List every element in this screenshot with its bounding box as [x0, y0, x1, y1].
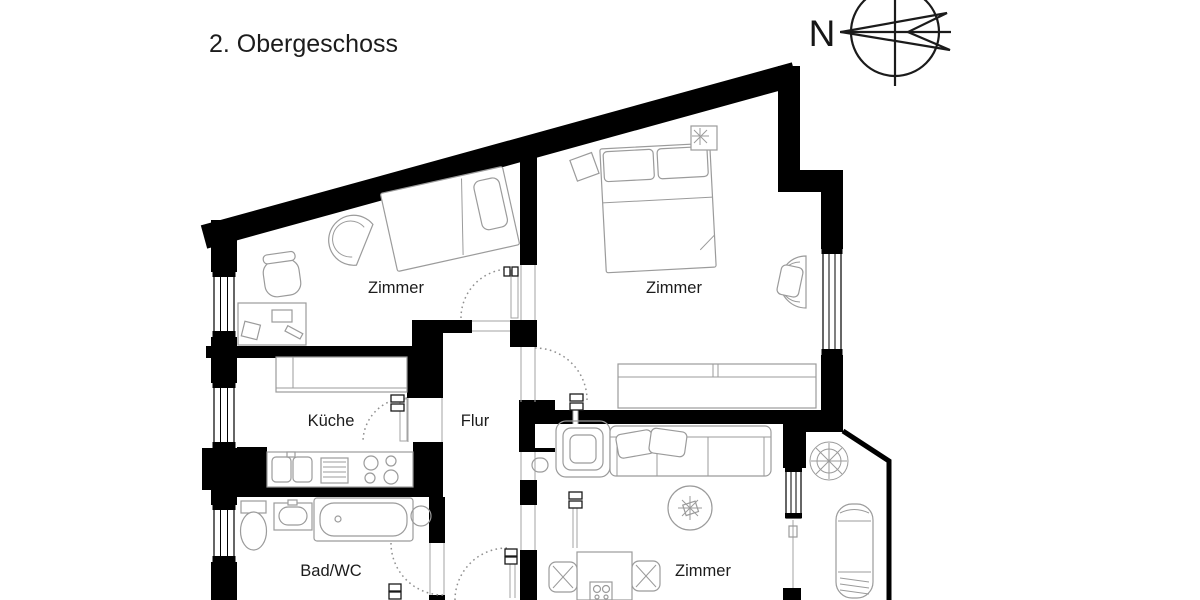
sun-lounger [836, 504, 873, 598]
small-box [241, 321, 260, 339]
wall-left-top [211, 220, 237, 272]
tree-icon [810, 442, 848, 480]
sideboard [618, 364, 816, 408]
dining-chair [632, 561, 660, 591]
wall-left-bump [202, 448, 212, 490]
toilet [241, 501, 267, 550]
room-label-zimmer-top-right: Zimmer [646, 279, 702, 297]
room-label-zimmer-top-left: Zimmer [368, 279, 424, 297]
bedroom-bottom-furniture [549, 426, 771, 600]
sofa-pillow [648, 428, 687, 458]
wall-living-north-corner [806, 410, 843, 432]
wall-right-a [821, 192, 843, 249]
wall-kueche-bad [237, 486, 443, 497]
wall-shaft [237, 447, 267, 497]
washbasin [274, 500, 312, 530]
faucet [287, 452, 295, 457]
nightstand [570, 153, 599, 182]
balcony-door-window [785, 467, 802, 588]
washing-machine [411, 506, 431, 526]
keyboard [272, 310, 292, 322]
floor-plan-drawing: 2. Obergeschoss Zimmer Zimmer Zimmer Küc… [0, 0, 1200, 600]
door-leaf-zimmer-top-left [511, 270, 518, 318]
room-label-zimmer-bottom: Zimmer [675, 562, 731, 580]
dining-chair [549, 562, 577, 592]
coffee-table [668, 486, 712, 530]
kitchen-counter [267, 452, 413, 487]
window-right [822, 248, 843, 355]
bathtub [314, 498, 413, 541]
armchair [776, 256, 806, 308]
wall-left-bottom [211, 562, 237, 600]
window-left-3 [213, 504, 236, 562]
sofa [610, 426, 771, 476]
wall-bad-east [429, 497, 445, 543]
balcony-front-cap [783, 588, 801, 600]
window-left-1 [213, 271, 236, 337]
wall-left-pier2 [211, 448, 237, 505]
wall-center-stub [510, 320, 537, 347]
wall-balcony-stub [783, 412, 806, 468]
double-bed [600, 143, 716, 273]
window-left-2 [213, 382, 236, 448]
page-title: 2. Obergeschoss [209, 30, 398, 58]
floor-plan-page: 2. Obergeschoss Zimmer Zimmer Zimmer Küc… [0, 0, 1200, 600]
wall-center-upper [520, 148, 537, 265]
wall-living-north-gap [573, 410, 578, 424]
shelf [691, 126, 717, 150]
office-chair [261, 251, 303, 299]
sink-basin-right [293, 457, 312, 482]
wall-center-lower-b [520, 550, 537, 600]
compass: N [809, 0, 951, 86]
wall-right-step [778, 170, 843, 192]
wall-bad-east-stub [429, 595, 445, 600]
wall-kueche-east-upper [407, 346, 443, 398]
compass-north-label: N [809, 13, 836, 54]
door-arc-zimmer-top-left [461, 269, 510, 318]
wall-center-lower-a [520, 480, 537, 505]
door-arc-entry [455, 548, 507, 600]
door-arc-zimmer-top-right [535, 348, 587, 400]
room-label-bad-wc: Bad/WC [300, 562, 362, 580]
wall-left-pier1 [211, 337, 237, 383]
room-label-kueche: Küche [308, 412, 355, 430]
balcony-furniture [810, 442, 873, 598]
sink-basin-left [272, 457, 291, 482]
bathroom-furniture [241, 498, 432, 550]
kitchen-cabinet-row [276, 357, 407, 392]
plant-icon [692, 128, 709, 145]
room-label-flur: Flur [461, 412, 490, 430]
armchair [321, 208, 374, 268]
